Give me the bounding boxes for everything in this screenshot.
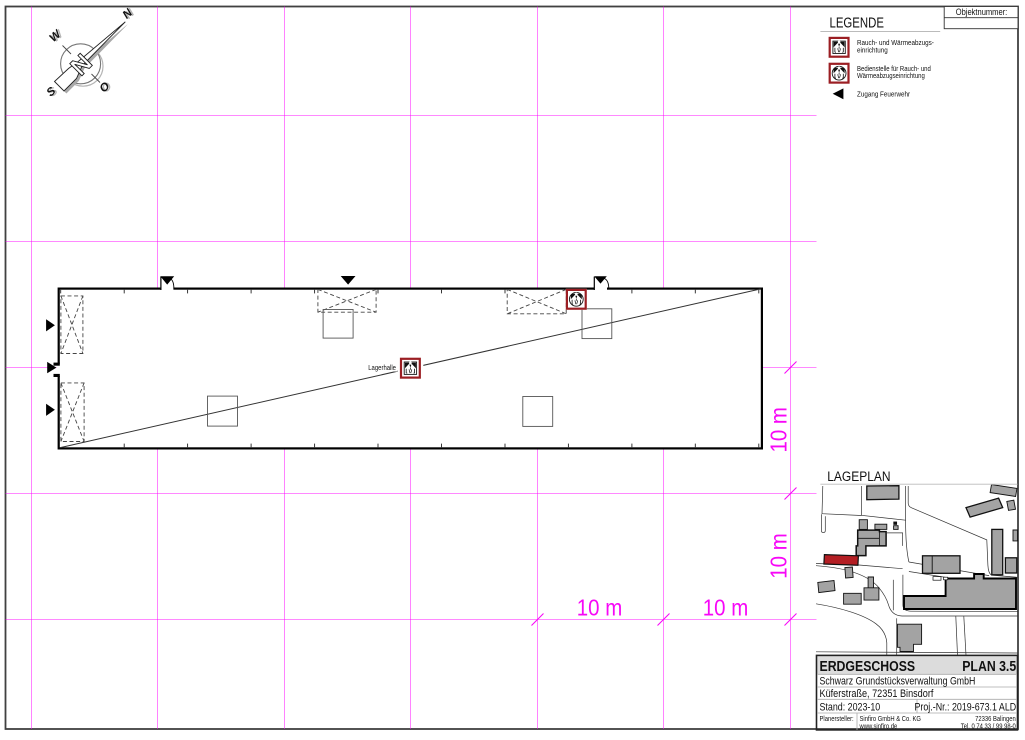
svg-text:www.sinfiro.de: www.sinfiro.de — [859, 723, 898, 731]
svg-text:Küferstraße, 72351 Binsdorf: Küferstraße, 72351 Binsdorf — [820, 688, 934, 700]
svg-text:Zugang Feuerwehr: Zugang Feuerwehr — [857, 91, 911, 99]
svg-text:Planersteller:: Planersteller: — [820, 716, 854, 724]
svg-text:einrichtung: einrichtung — [857, 47, 888, 55]
svg-text:LAGEPLAN: LAGEPLAN — [827, 468, 890, 484]
svg-text:Tel. 0 74 33 / 99 98-0: Tel. 0 74 33 / 99 98-0 — [961, 723, 1016, 731]
svg-text:Wärmeabzugseinrichtung: Wärmeabzugseinrichtung — [857, 73, 925, 81]
svg-text:Objektnummer:: Objektnummer: — [956, 6, 1008, 17]
svg-text:Lagerhalle: Lagerhalle — [368, 365, 396, 373]
svg-text:Proj.-Nr.: 2019-673.1 ALD: Proj.-Nr.: 2019-673.1 ALD — [914, 702, 1016, 714]
svg-text:LEGENDE: LEGENDE — [830, 14, 884, 31]
svg-text:PLAN 3.5: PLAN 3.5 — [962, 658, 1016, 674]
svg-text:Stand: 2023-10: Stand: 2023-10 — [820, 702, 881, 714]
svg-text:Schwarz Grundstücksverwaltung: Schwarz Grundstücksverwaltung GmbH — [820, 676, 976, 688]
svg-text:10 m: 10 m — [703, 594, 748, 621]
svg-text:72336 Balingen: 72336 Balingen — [975, 716, 1016, 724]
svg-text:10 m: 10 m — [765, 407, 792, 452]
svg-text:10 m: 10 m — [577, 594, 622, 621]
svg-text:ERDGESCHOSS: ERDGESCHOSS — [820, 658, 916, 674]
svg-text:Sinfiro GmbH & Co. KG: Sinfiro GmbH & Co. KG — [860, 716, 922, 724]
svg-text:10 m: 10 m — [765, 533, 792, 578]
